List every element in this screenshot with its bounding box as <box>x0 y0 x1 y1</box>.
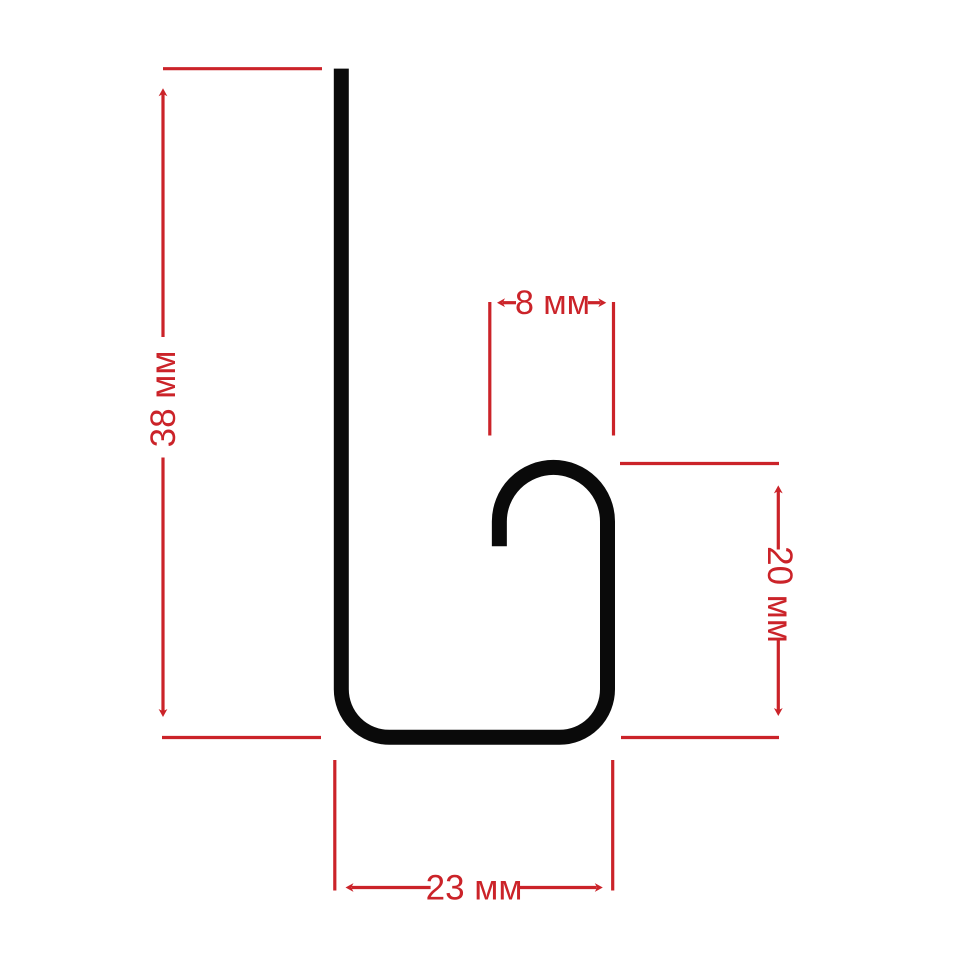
svg-text:38 мм: 38 мм <box>144 351 183 448</box>
svg-text:20 мм: 20 мм <box>760 546 799 643</box>
svg-text:8 мм: 8 мм <box>515 284 590 322</box>
svg-text:23 мм: 23 мм <box>426 869 523 908</box>
